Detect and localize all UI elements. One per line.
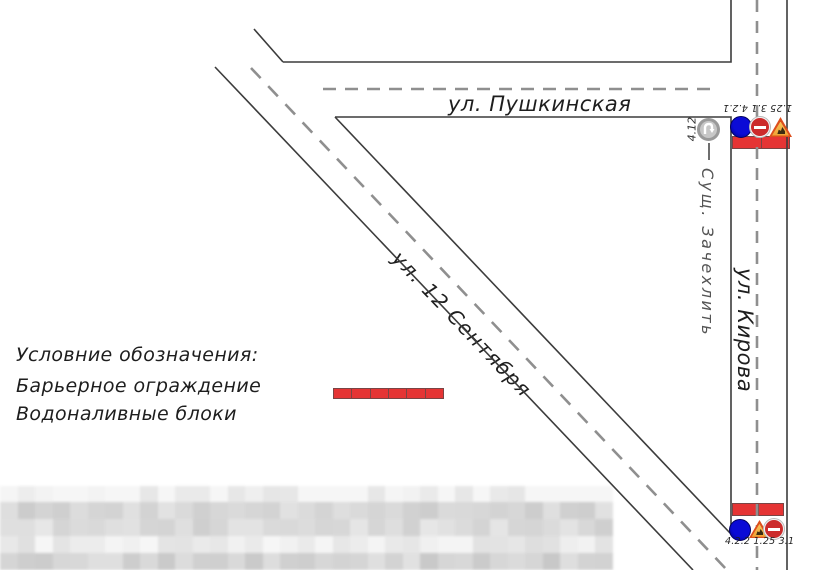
barrier-fence-symbol [333, 388, 443, 399]
south-sign-codes-label: 4.2.2 1.25 3.1 [725, 537, 787, 548]
no-entry-sign-icon [750, 117, 770, 137]
road-network [0, 0, 822, 570]
pushkinskaya-north-edge [254, 0, 731, 62]
detour-arrow-glyph [700, 121, 717, 138]
existing-sign-pole [708, 143, 710, 160]
sentyabrya-southwest-edge [215, 67, 693, 570]
detour-right-sign-icon [730, 116, 752, 138]
sentyabrya-northeast-edge [335, 117, 730, 533]
existing-detour-sign-icon [697, 118, 720, 141]
traffic-scheme-drawing: ул. Пушкинская ул. Кирова ул. 12 Сентябр… [0, 0, 822, 570]
sentyabrya-centerline [251, 68, 727, 570]
